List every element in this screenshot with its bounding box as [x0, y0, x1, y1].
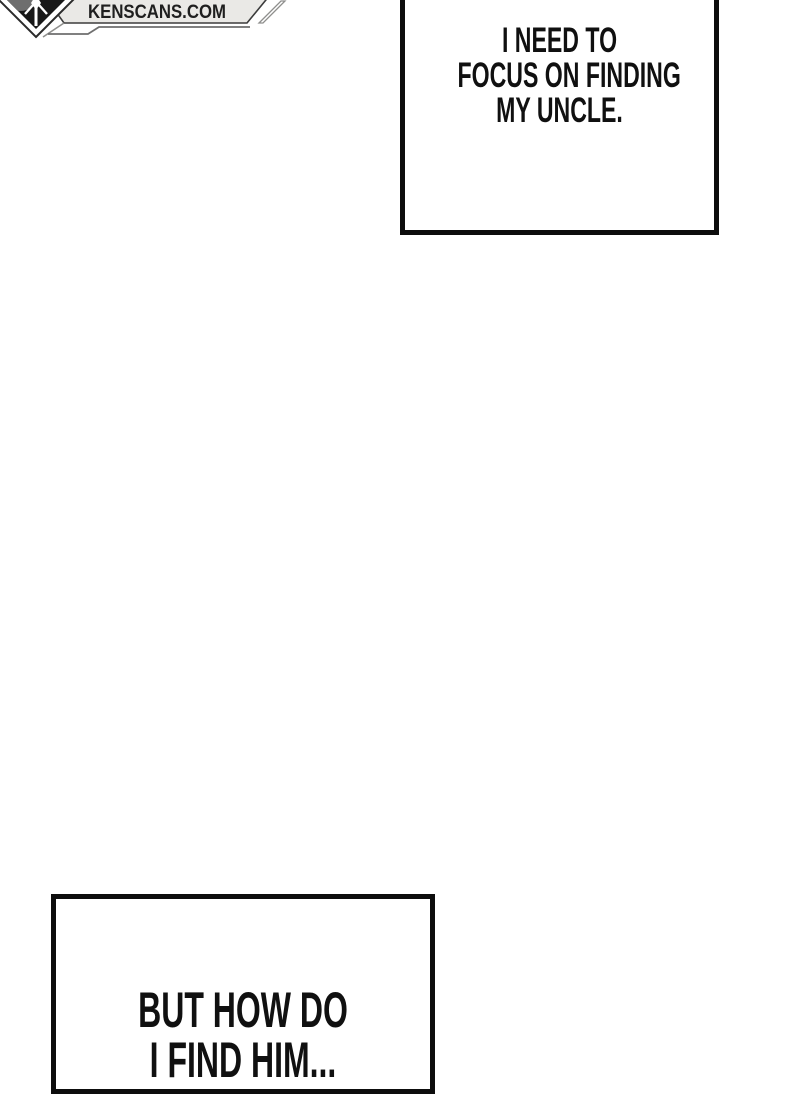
- speech-line: I FIND HIM...: [123, 1035, 362, 1085]
- speech-text-top: I NEED TO FOCUS ON FINDING MY UNCLE.: [405, 0, 714, 128]
- speech-box-bottom: BUT HOW DO I FIND HIM...: [51, 894, 435, 1094]
- speech-line: FOCUS ON FINDING: [458, 58, 662, 93]
- kenscans-watermark: KENSCANS.COM: [0, 0, 300, 48]
- speech-line: MY UNCLE.: [458, 93, 662, 128]
- speech-line: BUT HOW DO: [123, 985, 362, 1035]
- site-name: KENSCANS.COM: [88, 2, 226, 23]
- speech-text-bottom: BUT HOW DO I FIND HIM...: [56, 899, 430, 1085]
- speech-line: I NEED TO: [458, 23, 662, 58]
- trace-line-icon: [48, 27, 250, 34]
- speech-box-top: I NEED TO FOCUS ON FINDING MY UNCLE.: [400, 0, 719, 235]
- kenscans-logo: KENSCANS.COM: [0, 0, 300, 48]
